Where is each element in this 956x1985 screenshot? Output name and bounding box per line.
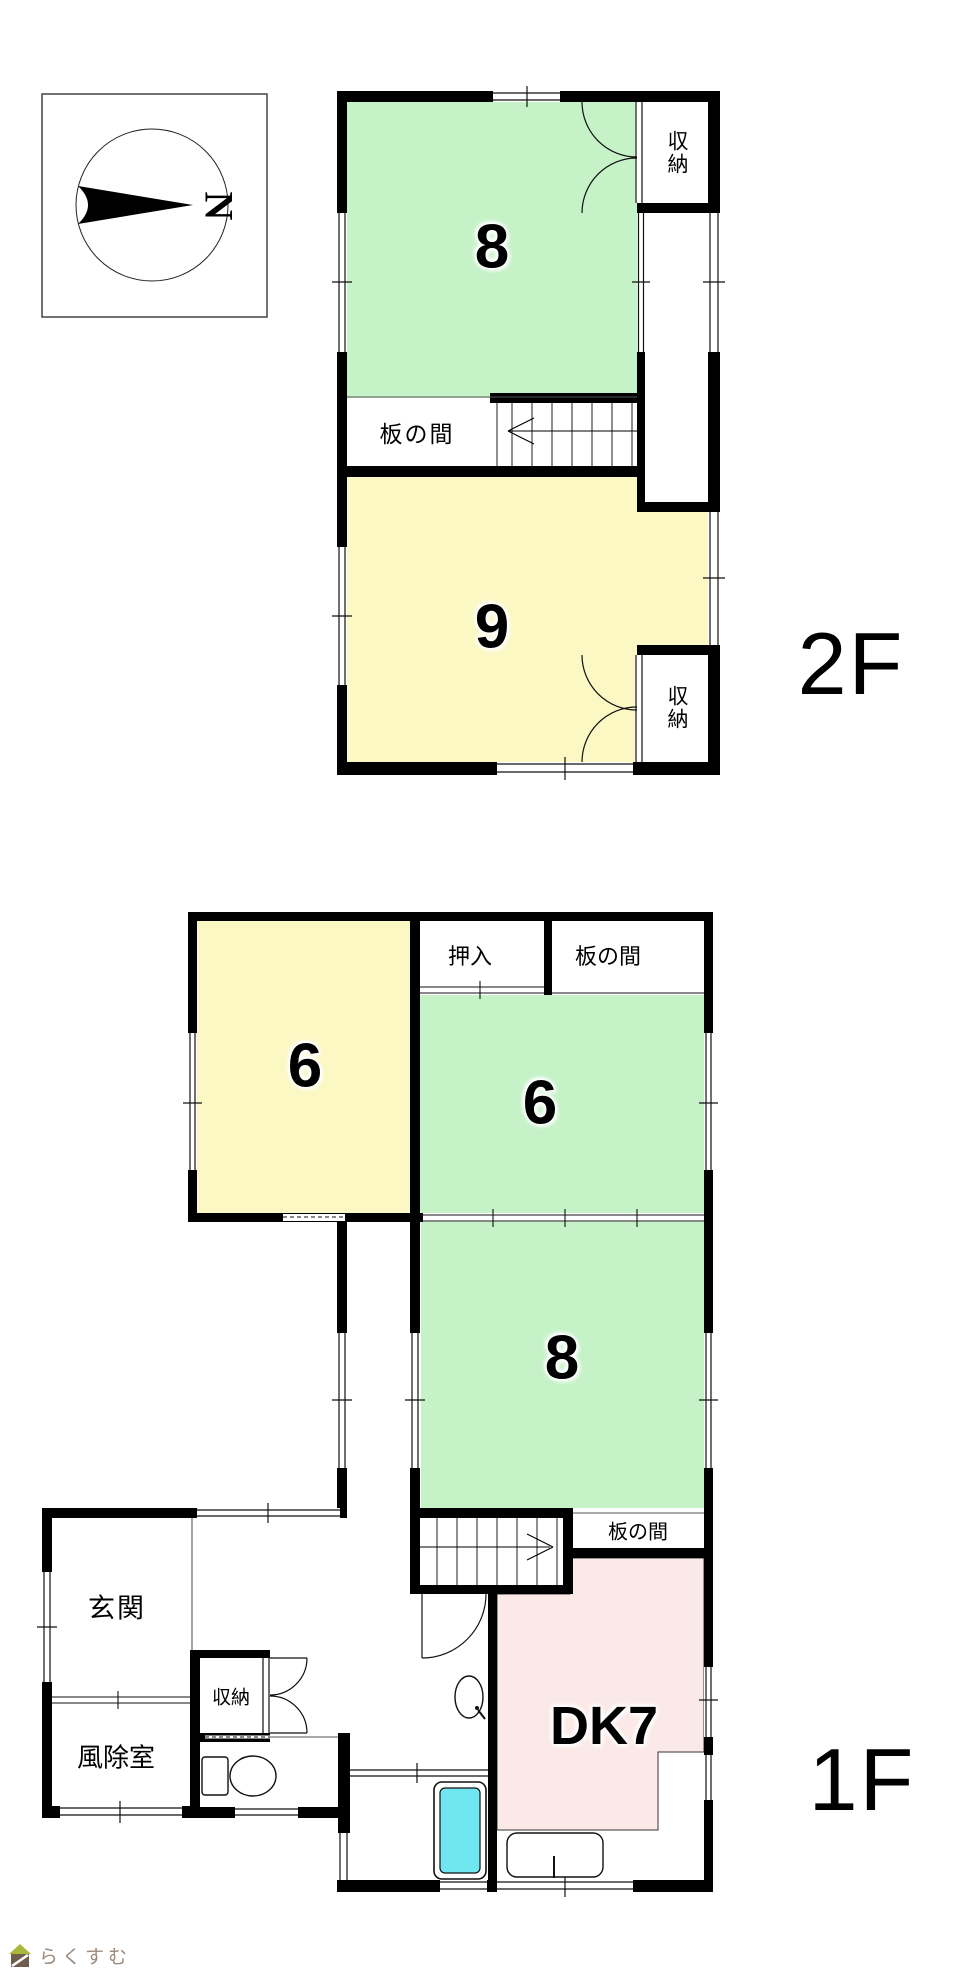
bathtub-icon — [434, 1782, 486, 1879]
f1-room-6-east-label: 6 — [523, 1068, 557, 1139]
f1-stairs — [420, 1518, 557, 1585]
f1-room-fills — [197, 921, 704, 1830]
f2-room-9-label: 9 — [475, 592, 509, 663]
f1-floor-label: 1F — [809, 1729, 916, 1831]
f2-floor-label: 2F — [798, 613, 905, 715]
f1-itanoma-center-label: 板の間 — [608, 1516, 668, 1545]
f1-itanoma-north-label: 板の間 — [575, 939, 641, 971]
f2-room-8-label: 8 — [475, 212, 509, 283]
f1-dk-label: DK7 — [550, 1695, 658, 1757]
f2-storage-top-label: 収納 — [661, 130, 691, 176]
f1-room-8-label: 8 — [545, 1323, 579, 1394]
floorplan-image: N 8 収納 板の間 9 収納 2F 押入 板の間 6 6 8 板の間 DK7 … — [0, 0, 956, 1985]
f1-genkan-label: 玄関 — [88, 1587, 146, 1626]
f1-oshiire-label: 押入 — [448, 939, 492, 971]
rakusumu-logo: らくすむ — [8, 1941, 131, 1969]
floorplan-svg — [0, 0, 956, 1985]
f2-storage-bottom-label: 収納 — [661, 685, 691, 731]
logo-text: らくすむ — [39, 1942, 131, 1969]
house-icon — [8, 1941, 32, 1969]
compass-north-label: N — [196, 192, 243, 221]
washbasin-icon — [455, 1676, 485, 1719]
f1-room-6-west-label: 6 — [288, 1031, 322, 1102]
f2-itanoma-label: 板の間 — [380, 415, 455, 449]
f1-storage-label: 収納 — [212, 1683, 250, 1710]
f1-windbreak-label: 風除室 — [77, 1738, 155, 1775]
toilet-icon — [202, 1757, 228, 1795]
f1-doors — [262, 1594, 486, 1733]
kitchen-counter-icon — [507, 1833, 603, 1878]
